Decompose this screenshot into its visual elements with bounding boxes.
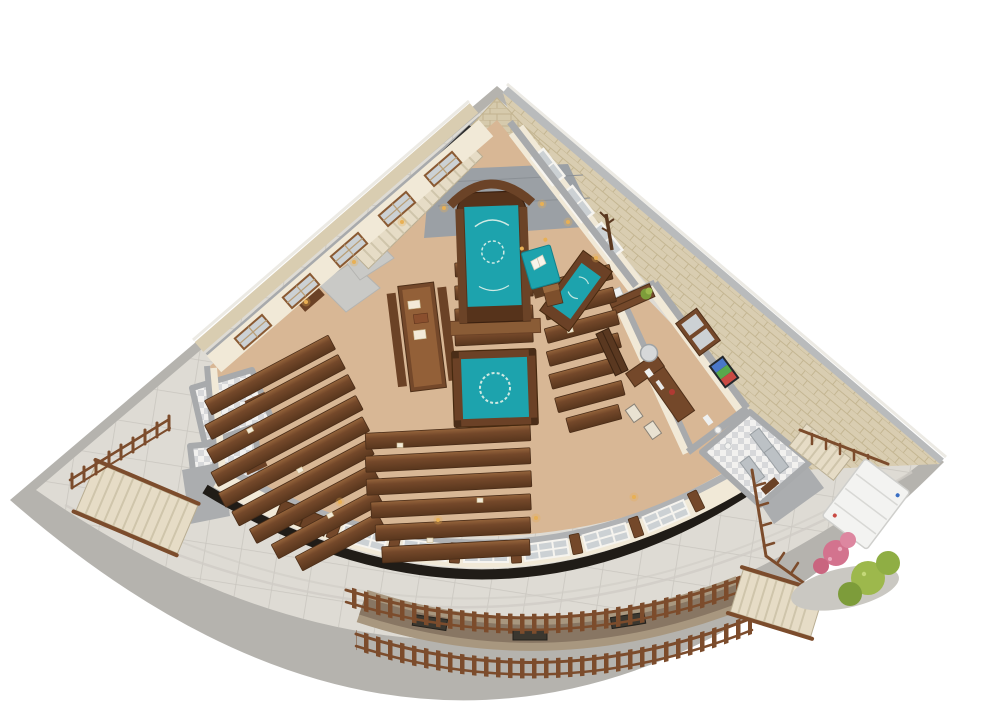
fixture xyxy=(715,427,721,433)
wall-sconce xyxy=(398,218,407,227)
fixture xyxy=(725,443,731,449)
prayer-book xyxy=(427,538,433,543)
pink-flower-shrub xyxy=(840,532,856,548)
wall-sconce xyxy=(532,514,541,523)
prayer-book xyxy=(477,498,483,503)
wall-sconce xyxy=(564,218,573,227)
synagogue-floorplan-render: Isometric 3D cutaway floor plan of a syn… xyxy=(0,0,1000,707)
wall-sconce xyxy=(350,258,359,267)
wall-sconce xyxy=(538,200,547,209)
wall-sconce xyxy=(434,516,443,525)
open-book xyxy=(413,329,426,339)
desk-accessory xyxy=(669,389,675,395)
wall-sconce xyxy=(302,298,311,307)
wall-sconce xyxy=(440,204,449,213)
prayer-book xyxy=(397,443,403,448)
bimah xyxy=(452,349,539,428)
wall-sconce xyxy=(630,493,639,502)
office-plant xyxy=(646,288,653,295)
bimah-teal-cover xyxy=(461,357,529,419)
closed-book xyxy=(413,313,428,324)
office-chair xyxy=(641,345,658,362)
green-shrub xyxy=(838,582,862,606)
floorplan-stage: Isometric 3D cutaway floor plan of a syn… xyxy=(0,0,1000,707)
wall-sconce xyxy=(592,254,601,263)
pink-flower-shrub xyxy=(813,558,829,574)
green-shrub xyxy=(876,551,900,575)
wall-sconce xyxy=(336,498,345,507)
